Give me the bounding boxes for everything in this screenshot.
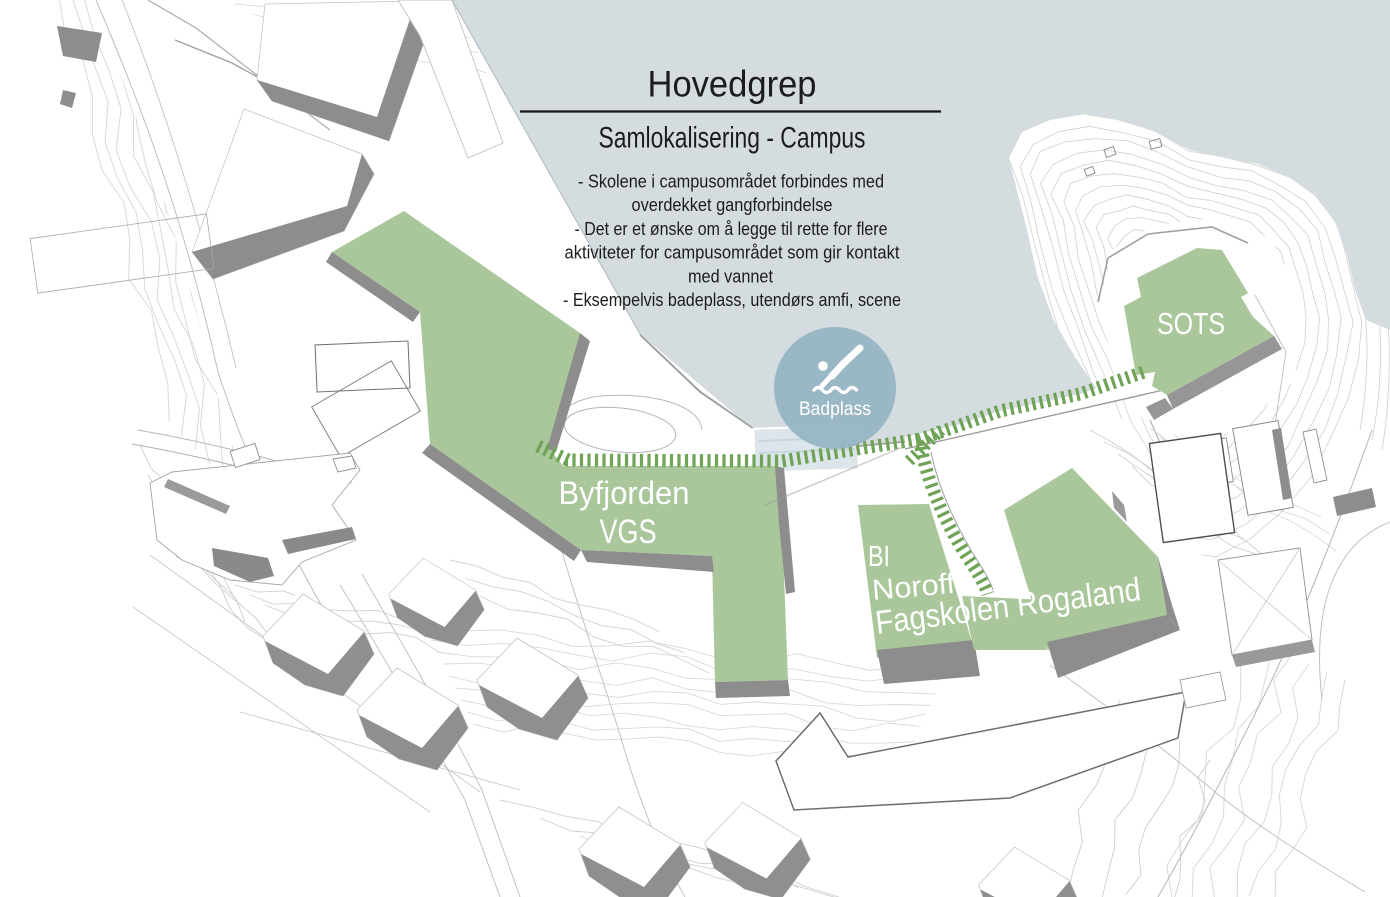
- svg-text:- Skolene i campusområdet forb: - Skolene i campusområdet forbindes med: [578, 171, 884, 192]
- svg-text:aktiviteter for campusområdet: aktiviteter for campusområdet som gir ko…: [565, 242, 900, 263]
- svg-text:overdekket gangforbindelse: overdekket gangforbindelse: [632, 194, 833, 215]
- svg-text:SOTS: SOTS: [1157, 306, 1225, 341]
- svg-text:Byfjorden: Byfjorden: [559, 475, 690, 511]
- svg-text:Badplass: Badplass: [799, 398, 871, 420]
- svg-text:BI: BI: [868, 541, 890, 573]
- svg-text:Samlokalisering - Campus: Samlokalisering - Campus: [599, 122, 866, 155]
- svg-text:VGS: VGS: [600, 513, 657, 551]
- svg-text:- Eksempelvis badeplass, utend: - Eksempelvis badeplass, utendørs amfi, …: [563, 289, 901, 310]
- svg-text:Hovedgrep: Hovedgrep: [648, 64, 817, 105]
- svg-text:- Det er et ønske om å legge t: - Det er et ønske om å legge til rette f…: [575, 218, 888, 239]
- svg-text:med vannet: med vannet: [688, 265, 773, 286]
